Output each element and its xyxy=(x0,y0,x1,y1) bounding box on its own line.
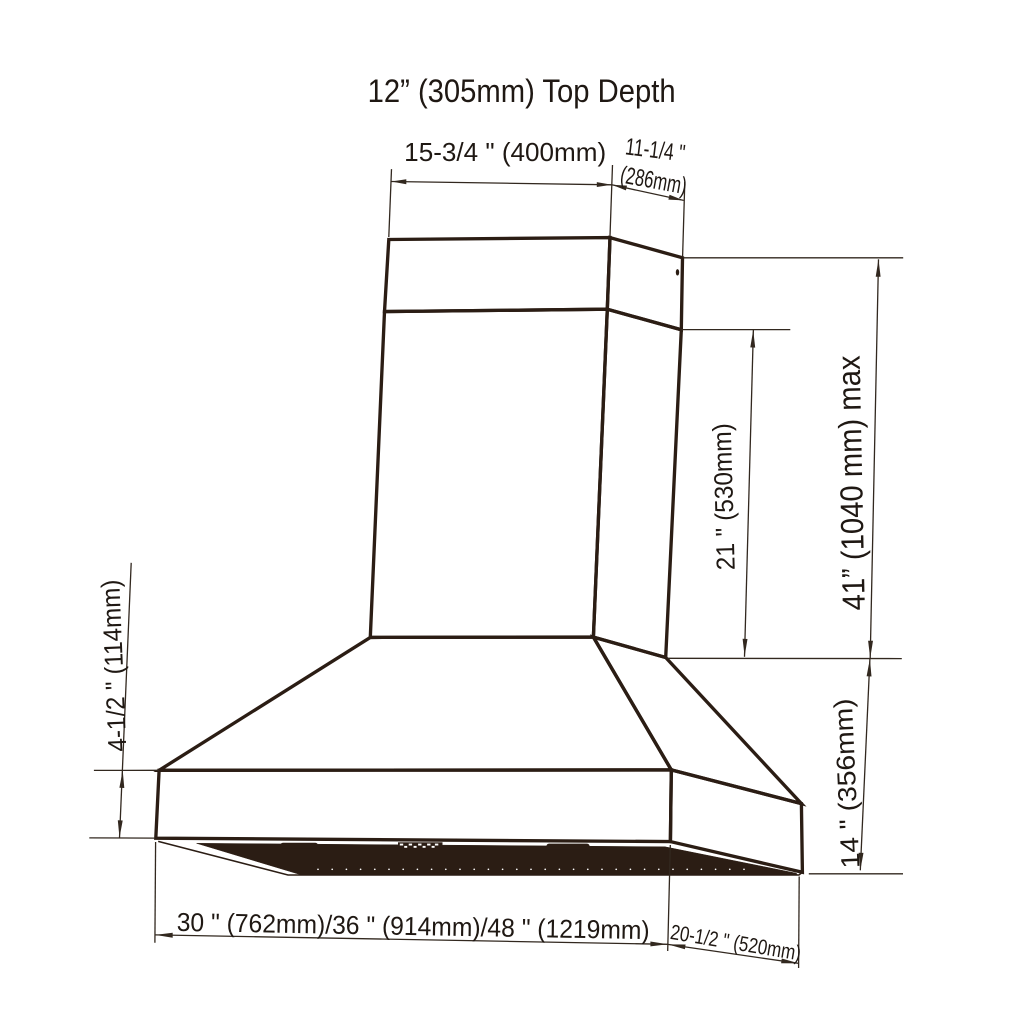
svg-text:21 " (530mm): 21 " (530mm) xyxy=(707,423,741,571)
svg-text:41” (1040 mm) max: 41” (1040 mm) max xyxy=(831,355,872,611)
svg-text:15-3/4 " (400mm): 15-3/4 " (400mm) xyxy=(404,137,606,167)
svg-text:12” (305mm) Top Depth: 12” (305mm) Top Depth xyxy=(368,73,676,109)
